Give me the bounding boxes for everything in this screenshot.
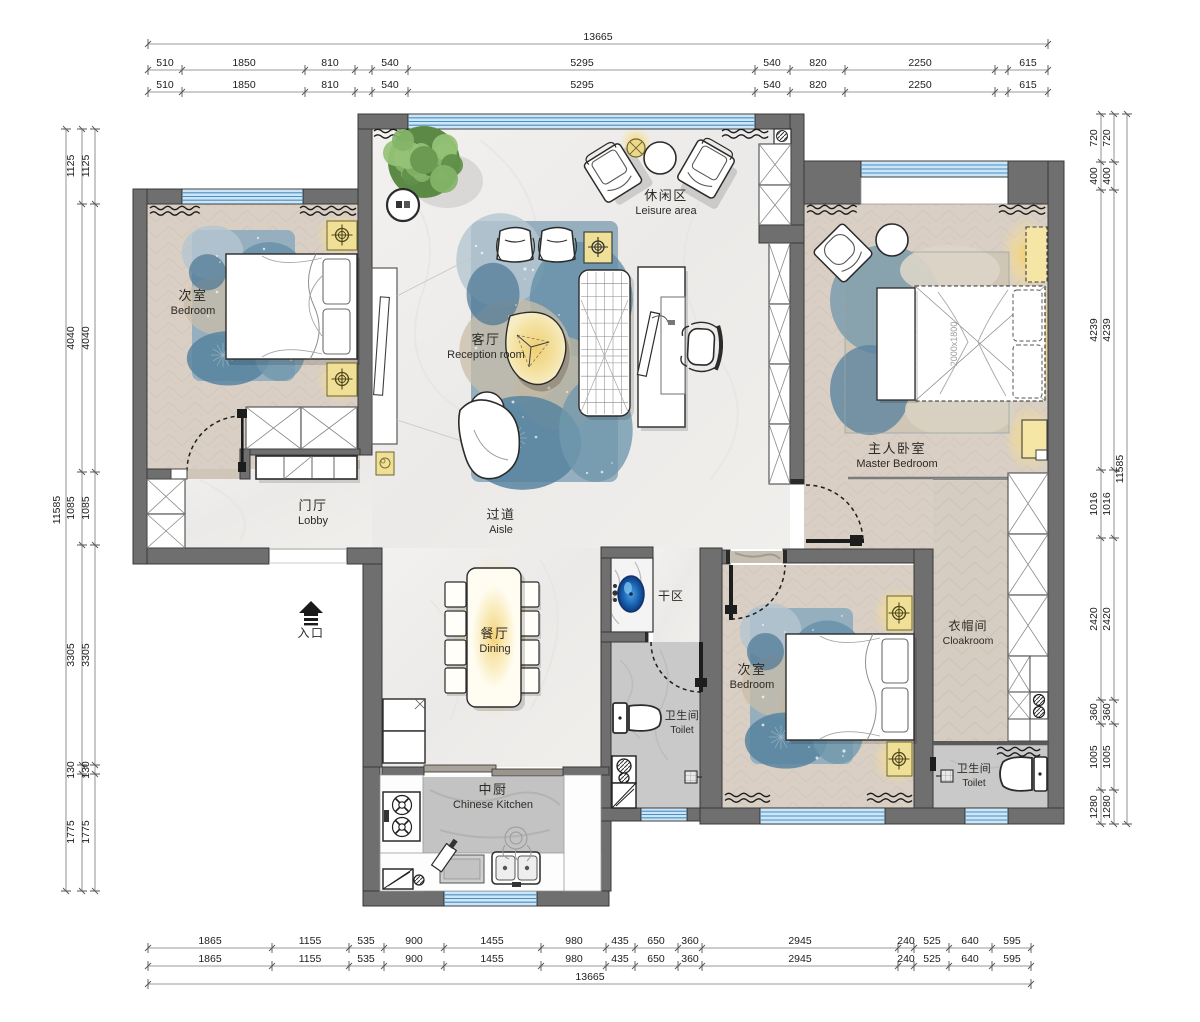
svg-text:Chinese Kitchen: Chinese Kitchen bbox=[453, 799, 533, 811]
svg-text:615: 615 bbox=[1019, 57, 1037, 69]
svg-text:1085: 1085 bbox=[80, 496, 92, 520]
svg-text:525: 525 bbox=[923, 935, 941, 947]
svg-text:1005: 1005 bbox=[1101, 745, 1113, 769]
svg-text:3305: 3305 bbox=[80, 643, 92, 667]
svg-text:980: 980 bbox=[565, 935, 583, 947]
svg-text:Reception room: Reception room bbox=[447, 349, 525, 361]
svg-text:2420: 2420 bbox=[1088, 607, 1100, 631]
svg-text:1455: 1455 bbox=[480, 953, 504, 965]
svg-text:535: 535 bbox=[357, 953, 375, 965]
svg-text:2945: 2945 bbox=[788, 953, 812, 965]
svg-text:Aisle: Aisle bbox=[489, 524, 513, 536]
svg-text:1865: 1865 bbox=[198, 953, 222, 965]
svg-text:540: 540 bbox=[763, 57, 781, 69]
svg-text:640: 640 bbox=[961, 953, 979, 965]
svg-text:衣帽间: 衣帽间 bbox=[948, 618, 987, 633]
svg-text:810: 810 bbox=[321, 57, 339, 69]
svg-text:1775: 1775 bbox=[65, 820, 77, 844]
svg-text:休闲区: 休闲区 bbox=[644, 188, 688, 203]
svg-text:餐厅: 餐厅 bbox=[480, 626, 509, 641]
svg-text:1155: 1155 bbox=[299, 953, 322, 965]
svg-text:240: 240 bbox=[897, 935, 915, 947]
svg-text:595: 595 bbox=[1003, 953, 1021, 965]
svg-text:4040: 4040 bbox=[80, 326, 92, 350]
svg-text:540: 540 bbox=[381, 57, 399, 69]
svg-text:次室: 次室 bbox=[737, 662, 766, 677]
svg-text:Master Bedroom: Master Bedroom bbox=[856, 458, 937, 470]
svg-text:4239: 4239 bbox=[1088, 318, 1100, 342]
svg-text:130: 130 bbox=[80, 761, 92, 779]
svg-text:2420: 2420 bbox=[1101, 607, 1113, 631]
svg-text:客厅: 客厅 bbox=[471, 332, 500, 347]
svg-text:13665: 13665 bbox=[583, 31, 612, 43]
svg-text:525: 525 bbox=[923, 953, 941, 965]
svg-text:400: 400 bbox=[1101, 167, 1113, 185]
svg-text:13665: 13665 bbox=[575, 971, 604, 983]
svg-text:1125: 1125 bbox=[65, 155, 77, 178]
svg-text:Toilet: Toilet bbox=[670, 725, 694, 736]
svg-text:过道: 过道 bbox=[486, 507, 515, 522]
svg-text:5295: 5295 bbox=[570, 79, 594, 91]
svg-text:2945: 2945 bbox=[788, 935, 812, 947]
svg-text:540: 540 bbox=[381, 79, 399, 91]
svg-text:11585: 11585 bbox=[1114, 455, 1126, 484]
svg-text:360: 360 bbox=[681, 953, 699, 965]
svg-text:820: 820 bbox=[809, 57, 827, 69]
svg-text:1850: 1850 bbox=[232, 79, 256, 91]
svg-text:Dining: Dining bbox=[479, 643, 510, 655]
svg-text:595: 595 bbox=[1003, 935, 1021, 947]
svg-text:Bedroom: Bedroom bbox=[171, 305, 216, 317]
svg-text:360: 360 bbox=[1101, 703, 1113, 721]
svg-text:入口: 入口 bbox=[297, 626, 324, 640]
svg-text:5295: 5295 bbox=[570, 57, 594, 69]
svg-text:820: 820 bbox=[809, 79, 827, 91]
svg-text:11585: 11585 bbox=[51, 496, 63, 525]
svg-text:卫生间: 卫生间 bbox=[665, 708, 700, 722]
svg-text:卫生间: 卫生间 bbox=[957, 761, 992, 775]
svg-text:980: 980 bbox=[565, 953, 583, 965]
svg-text:主人卧室: 主人卧室 bbox=[868, 441, 926, 456]
svg-text:干区: 干区 bbox=[658, 589, 684, 603]
svg-text:435: 435 bbox=[611, 953, 629, 965]
svg-text:900: 900 bbox=[405, 953, 423, 965]
svg-text:510: 510 bbox=[156, 79, 174, 91]
svg-text:535: 535 bbox=[357, 935, 375, 947]
svg-text:门厅: 门厅 bbox=[298, 498, 327, 513]
svg-text:Leisure area: Leisure area bbox=[635, 205, 697, 217]
svg-text:615: 615 bbox=[1019, 79, 1037, 91]
svg-text:Lobby: Lobby bbox=[298, 515, 328, 527]
svg-text:400: 400 bbox=[1088, 167, 1100, 185]
svg-text:640: 640 bbox=[961, 935, 979, 947]
svg-text:810: 810 bbox=[321, 79, 339, 91]
svg-text:Cloakroom: Cloakroom bbox=[943, 635, 994, 647]
svg-text:360: 360 bbox=[1088, 703, 1100, 721]
svg-text:次室: 次室 bbox=[178, 288, 207, 303]
svg-text:1455: 1455 bbox=[480, 935, 504, 947]
svg-text:1865: 1865 bbox=[198, 935, 222, 947]
svg-text:4239: 4239 bbox=[1101, 318, 1113, 342]
svg-text:2250: 2250 bbox=[908, 79, 932, 91]
svg-text:240: 240 bbox=[897, 953, 915, 965]
svg-text:4040: 4040 bbox=[65, 326, 77, 350]
svg-text:2250: 2250 bbox=[908, 57, 932, 69]
svg-text:1850: 1850 bbox=[232, 57, 256, 69]
svg-text:130: 130 bbox=[65, 761, 77, 779]
svg-text:900: 900 bbox=[405, 935, 423, 947]
svg-text:1016: 1016 bbox=[1088, 492, 1100, 516]
svg-text:2000x1800: 2000x1800 bbox=[949, 322, 959, 367]
svg-text:1775: 1775 bbox=[80, 820, 92, 844]
svg-text:650: 650 bbox=[647, 935, 665, 947]
svg-text:Bedroom: Bedroom bbox=[730, 679, 775, 691]
svg-text:435: 435 bbox=[611, 935, 629, 947]
svg-text:Toilet: Toilet bbox=[962, 778, 986, 789]
svg-text:1085: 1085 bbox=[65, 496, 77, 520]
svg-text:1280: 1280 bbox=[1101, 795, 1113, 819]
svg-text:360: 360 bbox=[681, 935, 699, 947]
svg-text:720: 720 bbox=[1088, 129, 1100, 147]
svg-text:1125: 1125 bbox=[80, 155, 92, 178]
svg-text:1280: 1280 bbox=[1088, 795, 1100, 819]
svg-text:中厨: 中厨 bbox=[478, 782, 507, 797]
svg-text:1016: 1016 bbox=[1101, 492, 1113, 516]
svg-text:540: 540 bbox=[763, 79, 781, 91]
svg-text:1155: 1155 bbox=[299, 935, 322, 947]
svg-text:650: 650 bbox=[647, 953, 665, 965]
svg-text:1005: 1005 bbox=[1088, 745, 1100, 769]
svg-text:3305: 3305 bbox=[65, 643, 77, 667]
svg-text:510: 510 bbox=[156, 57, 174, 69]
svg-text:720: 720 bbox=[1101, 129, 1113, 147]
